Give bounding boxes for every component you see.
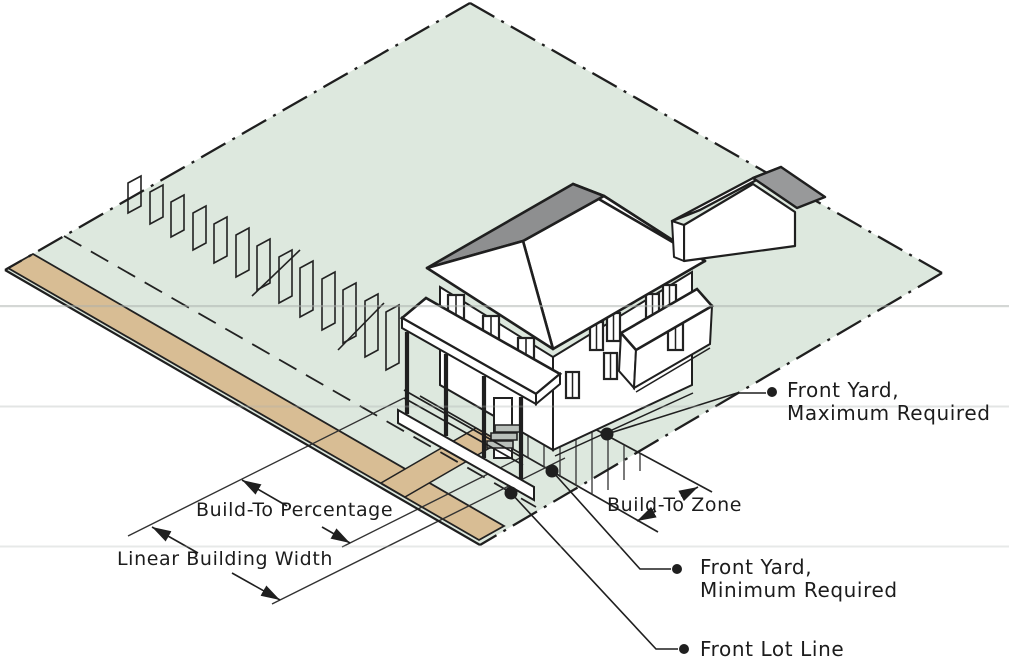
callout-front-yard-max-line2: Maximum Required — [787, 402, 991, 425]
label-dot — [672, 564, 682, 574]
callout-front-yard-max: Front Yard, Maximum Required — [787, 379, 991, 425]
callout-front-yard-max-line1: Front Yard, — [787, 379, 991, 402]
dimension-label-build-to-percentage: Build-To Percentage — [196, 499, 393, 522]
dimension-label-build-to-zone: Build-To Zone — [607, 494, 742, 517]
callout-front-yard-min-line1: Front Yard, — [700, 556, 898, 579]
diagram-canvas: Front Yard, Maximum Required Build-To Zo… — [0, 0, 1009, 669]
callout-front-yard-min-line2: Minimum Required — [700, 579, 898, 602]
garage-side-wall — [672, 221, 684, 261]
dimension-label-linear-building-width: Linear Building Width — [117, 548, 333, 571]
leader-dot — [546, 465, 559, 478]
callout-front-yard-min: Front Yard, Minimum Required — [700, 556, 898, 602]
label-dot — [679, 644, 689, 654]
leader-dot — [505, 487, 518, 500]
label-dot — [767, 387, 777, 397]
callout-front-lot-line: Front Lot Line — [700, 638, 844, 661]
leader-dot — [601, 428, 614, 441]
